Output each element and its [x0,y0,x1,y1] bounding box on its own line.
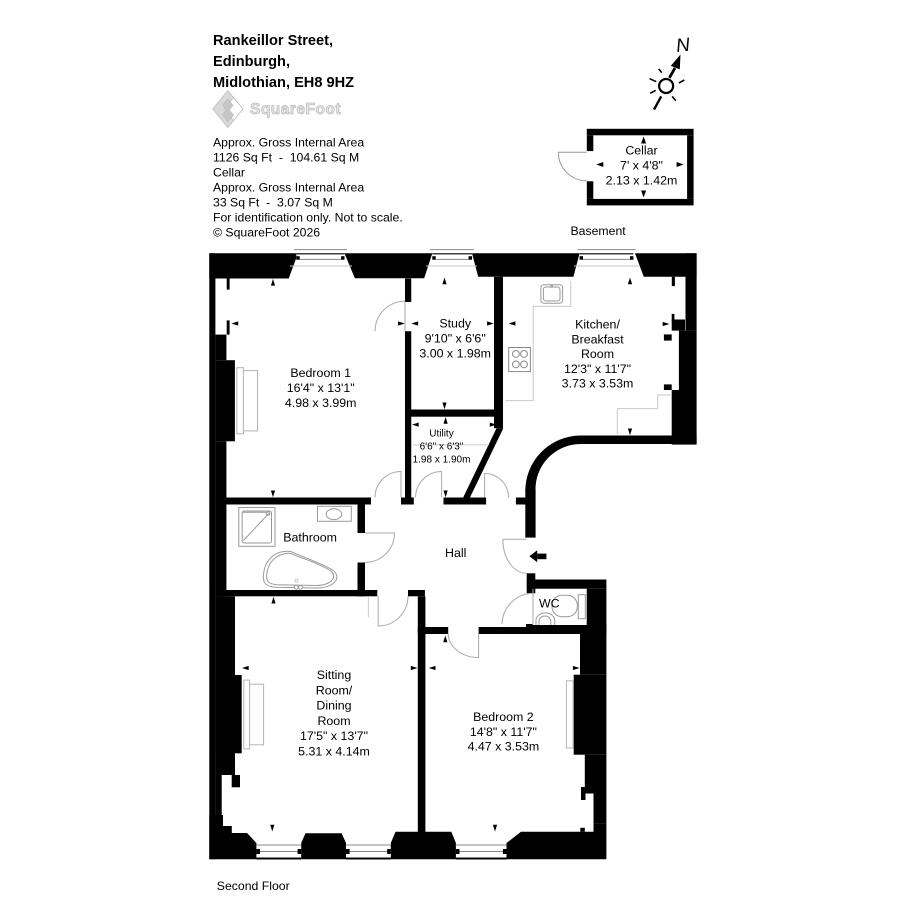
svg-text:4.47 x 3.53m: 4.47 x 3.53m [468,740,540,754]
svg-text:Kitchen/: Kitchen/ [575,318,620,332]
svg-text:9'10" x 6'6": 9'10" x 6'6" [425,332,486,346]
svg-text:6'6" x 6'3": 6'6" x 6'3" [420,442,464,453]
svg-text:4.98 x 3.99m: 4.98 x 3.99m [285,396,357,410]
svg-text:Edinburgh,: Edinburgh, [213,54,290,70]
svg-text:Room/: Room/ [316,683,353,697]
svg-text:7' x 4'8": 7' x 4'8" [620,158,663,172]
svg-text:Approx. Gross Internal Area: Approx. Gross Internal Area [213,181,364,195]
svg-text:Bedroom 1: Bedroom 1 [290,366,351,380]
svg-text:2.13 x 1.42m: 2.13 x 1.42m [606,174,678,188]
svg-text:Dining: Dining [316,699,351,713]
svg-text:Second Floor: Second Floor [217,879,290,893]
svg-text:17'5" x 13'7": 17'5" x 13'7" [300,729,368,743]
svg-text:Cellar: Cellar [625,144,657,158]
svg-text:For identification only. Not t: For identification only. Not to scale. [213,211,403,225]
svg-text:Midlothian, EH8 9HZ: Midlothian, EH8 9HZ [213,75,354,91]
svg-text:1.98 x 1.90m: 1.98 x 1.90m [413,455,471,466]
svg-text:SquareFoot: SquareFoot [250,101,341,118]
svg-text:Rankeillor Street,: Rankeillor Street, [213,33,333,49]
svg-text:© SquareFoot 2026: © SquareFoot 2026 [213,226,320,240]
svg-text:Room: Room [317,714,350,728]
svg-text:5.31 x 4.14m: 5.31 x 4.14m [298,745,370,759]
svg-text:Basement: Basement [571,224,627,238]
svg-text:33 Sq Ft - 3.07 Sq M: 33 Sq Ft - 3.07 Sq M [213,196,333,210]
svg-text:Bathroom: Bathroom [283,531,337,545]
svg-text:12'3" x 11'7": 12'3" x 11'7" [564,362,631,376]
svg-text:Utility: Utility [429,429,453,440]
svg-text:Cellar: Cellar [213,166,245,180]
svg-text:16'4" x 13'1": 16'4" x 13'1" [287,381,355,395]
svg-text:Hall: Hall [445,546,466,560]
svg-text:Sitting: Sitting [317,668,352,682]
svg-text:1126 Sq Ft - 104.61 Sq M: 1126 Sq Ft - 104.61 Sq M [213,151,359,165]
svg-text:3.73 x 3.53m: 3.73 x 3.53m [562,377,634,391]
svg-text:WC: WC [539,597,560,611]
svg-text:Approx. Gross Internal Area: Approx. Gross Internal Area [213,136,364,150]
svg-text:3.00 x 1.98m: 3.00 x 1.98m [419,347,491,361]
svg-text:14'8" x 11'7": 14'8" x 11'7" [470,725,537,739]
svg-text:Bedroom 2: Bedroom 2 [473,710,534,724]
svg-text:Breakfast: Breakfast [571,332,624,346]
svg-text:Room: Room [581,347,614,361]
svg-text:N: N [675,35,691,57]
svg-text:Study: Study [439,317,471,331]
